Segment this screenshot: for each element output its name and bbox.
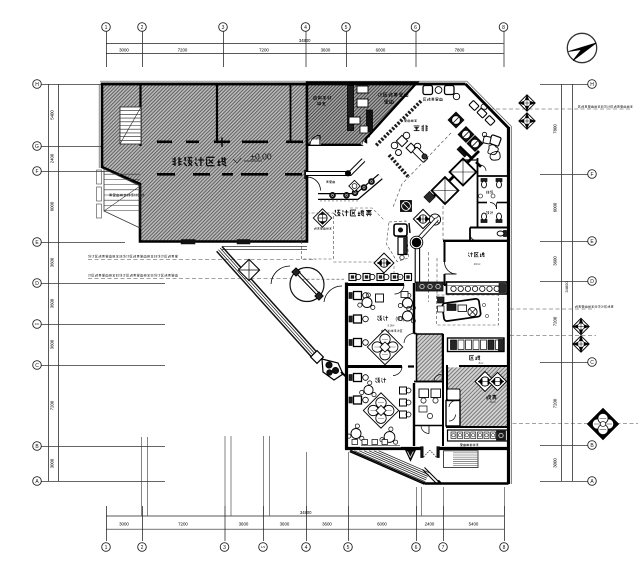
svg-text:2: 2 [141,545,144,551]
svg-text:6000: 6000 [50,201,55,211]
svg-text:34800: 34800 [564,281,569,293]
svg-text:4: 4 [304,25,307,31]
svg-text:6000: 6000 [553,202,558,212]
svg-text:5: 5 [345,25,348,31]
svg-text:2400: 2400 [50,153,55,163]
svg-text:±0.00: ±0.00 [250,151,272,161]
svg-text:2: 2 [141,25,144,31]
svg-text:3600: 3600 [322,522,332,527]
svg-text:5400: 5400 [469,522,479,527]
svg-text:6: 6 [414,25,417,31]
svg-text:34800: 34800 [299,38,311,43]
svg-text:1: 1 [105,25,108,31]
svg-text:34800: 34800 [300,510,312,515]
svg-text:1/C: 1/C [35,322,41,326]
svg-text:6: 6 [415,545,418,551]
svg-text:3000: 3000 [50,458,55,468]
svg-text:7800: 7800 [455,47,465,52]
svg-text:3: 3 [223,545,226,551]
svg-text:3600: 3600 [321,47,331,52]
svg-text:F: F [590,172,593,178]
svg-text:C: C [590,360,594,366]
svg-text:7: 7 [442,545,445,551]
svg-text:40m²: 40m² [490,400,496,404]
svg-text:H: H [35,82,39,88]
svg-text:7200: 7200 [259,47,269,52]
svg-text:7200: 7200 [178,522,188,527]
svg-text:3600: 3600 [553,256,558,266]
svg-text:8: 8 [503,545,506,551]
svg-text:5: 5 [347,545,350,551]
svg-text:3000: 3000 [119,47,129,52]
svg-text:8m²: 8m² [479,361,484,365]
svg-text:7800: 7800 [553,124,558,134]
svg-text:D: D [35,281,39,287]
svg-text:F: F [35,169,38,175]
svg-text:3600: 3600 [50,257,55,267]
svg-text:3600: 3600 [239,522,249,527]
svg-text:3600: 3600 [50,339,55,349]
svg-text:4: 4 [305,545,308,551]
svg-text:3600: 3600 [50,298,55,308]
svg-text:6000: 6000 [376,47,386,52]
svg-text:8.0M²: 8.0M² [388,324,395,328]
svg-text:8: 8 [502,25,505,31]
svg-text:7200: 7200 [553,398,558,408]
svg-text:7200: 7200 [553,316,558,326]
svg-text:C: C [35,363,39,369]
svg-text:5400: 5400 [50,110,55,120]
svg-text:1/3: 1/3 [261,545,266,549]
svg-text:6000: 6000 [377,522,387,527]
svg-text:3600: 3600 [280,522,290,527]
svg-text:7200: 7200 [178,47,188,52]
svg-text:D: D [590,279,594,285]
svg-text:2400: 2400 [425,522,435,527]
svg-text:16m²: 16m² [474,262,481,266]
svg-text:1: 1 [105,545,108,551]
svg-text:3: 3 [222,25,225,31]
svg-text:G: G [35,144,39,150]
svg-text:3000: 3000 [119,522,129,527]
svg-text:H: H [590,82,594,88]
svg-text:7200: 7200 [50,400,55,410]
svg-text:3000: 3000 [553,458,558,468]
